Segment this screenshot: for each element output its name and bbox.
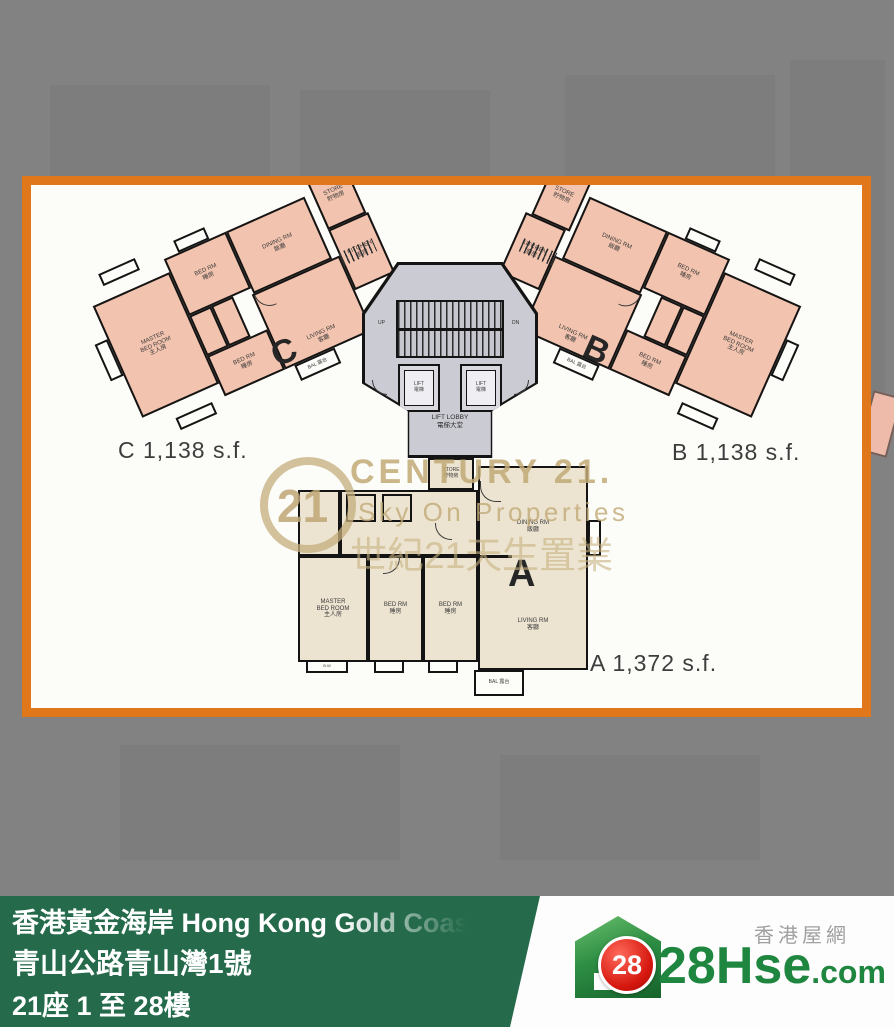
bay-window-label: B.W xyxy=(323,664,331,669)
bay-window xyxy=(428,660,458,673)
staircase xyxy=(396,300,504,358)
ghost-shape xyxy=(300,90,490,190)
room-label: BED RM 睡房 xyxy=(233,352,260,374)
room-label: BED RM 睡房 xyxy=(673,263,700,285)
screenshot-root: MASTER BED ROOM 主人房 BED RM 睡房 BED RM 睡房 … xyxy=(0,0,894,1027)
lift-label: LIFT 電梯 xyxy=(414,382,424,394)
bay-window xyxy=(175,402,217,430)
balcony-label: BAL 露台 xyxy=(307,357,328,371)
door-arc xyxy=(372,380,387,395)
logo-tld: .com xyxy=(811,954,886,990)
estate-address: 青山公路青山灣1號 xyxy=(12,942,252,982)
lift-lobby: UP DN LIFT 電梯 LIFT 電梯 LIFT LOBBY 電梯大堂 xyxy=(362,262,538,458)
bay-window xyxy=(98,258,140,286)
ghost-shape xyxy=(565,75,775,190)
room-a-ensuite xyxy=(298,490,340,556)
room-label: BED RM 睡房 xyxy=(635,352,662,374)
ghost-shape xyxy=(120,745,400,860)
stair-up-label: UP xyxy=(378,320,385,326)
room-label: STORE 貯物房 xyxy=(550,185,574,206)
room-label: DINING RM 飯廳 xyxy=(598,232,633,258)
unit-c-area-label: C 1,138 s.f. xyxy=(118,437,248,464)
ghost-shape xyxy=(500,755,760,860)
balcony-label: BAL 露台 xyxy=(489,680,510,686)
badge-number: 28 xyxy=(612,950,642,981)
room-a-master: MASTER BED ROOM 主人房 xyxy=(298,556,368,662)
lift-cab: LIFT 電梯 xyxy=(404,370,434,406)
room-label: MASTER BED ROOM 主人房 xyxy=(317,599,350,620)
28-badge-icon: 28 xyxy=(598,936,656,994)
logo-tagline: 香港屋網 xyxy=(754,919,850,948)
room-label: DINING RM 飯廳 xyxy=(262,232,297,258)
room-label: BED RM 睡房 xyxy=(439,602,462,616)
bay-window xyxy=(588,520,601,556)
estate-name: 香港黃金海岸 Hong Kong Gold Coast xyxy=(12,901,478,940)
room-label: MASTER BED ROOM 主人房 xyxy=(719,329,757,361)
bay-window xyxy=(677,402,719,430)
door-arc xyxy=(514,380,529,395)
bay-window xyxy=(374,660,404,673)
footer-bar: 香港黃金海岸 Hong Kong Gold Coast 青山公路青山灣1號 21… xyxy=(0,896,894,1027)
unit-a-letter: A xyxy=(508,553,535,596)
room-a-bed2: BED RM 睡房 xyxy=(423,556,478,662)
balcony: BAL 露台 xyxy=(474,670,524,696)
room-label: LIVING RM 客廳 xyxy=(480,618,586,632)
block-floor-range: 21座 1 至 28樓 xyxy=(12,984,191,1023)
lobby-label: LIFT LOBBY 電梯大堂 xyxy=(390,414,510,430)
room-a-store: STORE 貯物房 xyxy=(428,458,474,490)
lift-2: LIFT 電梯 xyxy=(460,364,502,412)
unit-a-area-label: A 1,372 s.f. xyxy=(590,650,717,677)
room-a-bed1: BED RM 睡房 xyxy=(368,556,423,662)
room-a-bath1 xyxy=(346,494,376,522)
room-label: BED RM 睡房 xyxy=(384,602,407,616)
room-a-bath2 xyxy=(382,494,412,522)
lift-label: LIFT 電梯 xyxy=(476,382,486,394)
room-label: LIVING RM 客廳 xyxy=(306,324,342,355)
room-label: DINING RM 飯廳 xyxy=(480,520,586,534)
bay-window: B.W xyxy=(306,660,348,673)
unit-c-wing: MASTER BED ROOM 主人房 BED RM 睡房 BED RM 睡房 … xyxy=(87,176,413,430)
room-label: STORE 貯物房 xyxy=(442,468,459,480)
room-label: MASTER BED ROOM 主人房 xyxy=(137,329,175,361)
room-label: STORE 貯物房 xyxy=(323,184,347,205)
bay-window xyxy=(754,258,796,286)
stair-dn-label: DN xyxy=(512,320,519,326)
dining-living-wall xyxy=(478,555,512,558)
room-label: BED RM 睡房 xyxy=(194,263,221,285)
stair-landing-line xyxy=(398,328,502,331)
floorplan-frame: MASTER BED ROOM 主人房 BED RM 睡房 BED RM 睡房 … xyxy=(22,176,871,717)
lift-1: LIFT 電梯 xyxy=(398,364,440,412)
unit-b-area-label: B 1,138 s.f. xyxy=(672,439,800,466)
lift-cab: LIFT 電梯 xyxy=(466,370,496,406)
